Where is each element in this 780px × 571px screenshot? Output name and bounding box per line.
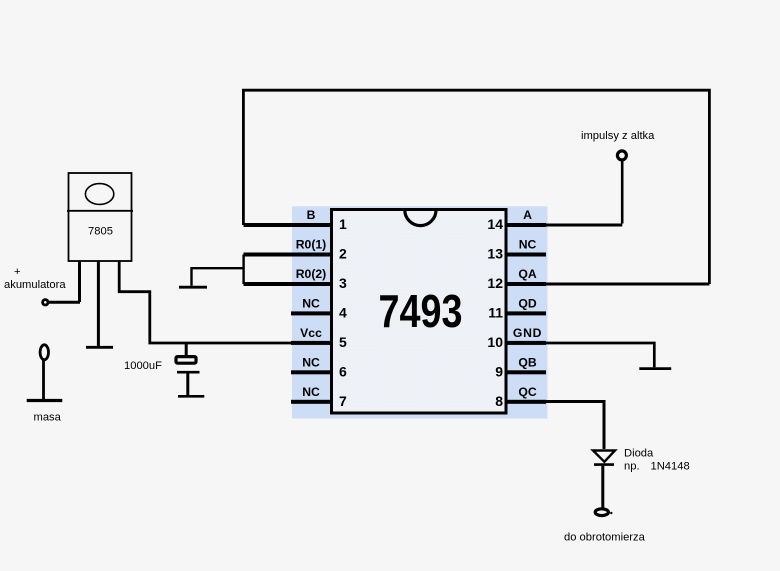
svg-text:np.: np. xyxy=(624,461,640,473)
svg-text:9: 9 xyxy=(495,363,503,379)
svg-text:QB: QB xyxy=(518,355,536,369)
svg-text:13: 13 xyxy=(487,246,503,262)
svg-text:NC: NC xyxy=(302,385,320,399)
svg-text:QD: QD xyxy=(518,296,536,310)
svg-text:masa: masa xyxy=(34,411,62,423)
svg-text:1N4148: 1N4148 xyxy=(651,461,690,473)
svg-text:Dioda: Dioda xyxy=(624,448,654,460)
svg-text:7: 7 xyxy=(339,393,347,409)
svg-text:14: 14 xyxy=(487,216,503,232)
svg-text:NC: NC xyxy=(302,355,320,369)
svg-text:R0(1): R0(1) xyxy=(296,238,326,252)
svg-text:GND: GND xyxy=(513,326,542,340)
svg-text:R0(2): R0(2) xyxy=(296,267,326,281)
svg-text:11: 11 xyxy=(488,304,503,320)
svg-text:do obrotomierza: do obrotomierza xyxy=(564,532,646,544)
svg-text:NC: NC xyxy=(302,296,320,310)
svg-text:12: 12 xyxy=(487,275,503,291)
svg-text:2: 2 xyxy=(339,246,347,262)
svg-text:B: B xyxy=(307,208,316,222)
svg-text:1: 1 xyxy=(339,216,347,232)
svg-text:NC: NC xyxy=(519,238,537,252)
svg-text:impulsy z altka: impulsy z altka xyxy=(581,130,655,142)
svg-text:A: A xyxy=(523,208,532,222)
svg-text:3: 3 xyxy=(339,275,347,291)
svg-text:akumulatora: akumulatora xyxy=(4,279,66,291)
svg-text:6: 6 xyxy=(339,363,347,379)
svg-text:8: 8 xyxy=(495,393,503,409)
svg-text:QA: QA xyxy=(518,267,536,281)
svg-text:+: + xyxy=(14,266,21,278)
svg-text:4: 4 xyxy=(339,304,347,320)
svg-text:5: 5 xyxy=(339,334,347,350)
svg-text:7805: 7805 xyxy=(88,226,113,238)
svg-text:7493: 7493 xyxy=(379,285,463,337)
svg-text:1000uF: 1000uF xyxy=(124,360,162,372)
svg-text:Vcc: Vcc xyxy=(300,326,322,340)
svg-text:10: 10 xyxy=(487,334,503,350)
svg-text:QC: QC xyxy=(518,385,536,399)
